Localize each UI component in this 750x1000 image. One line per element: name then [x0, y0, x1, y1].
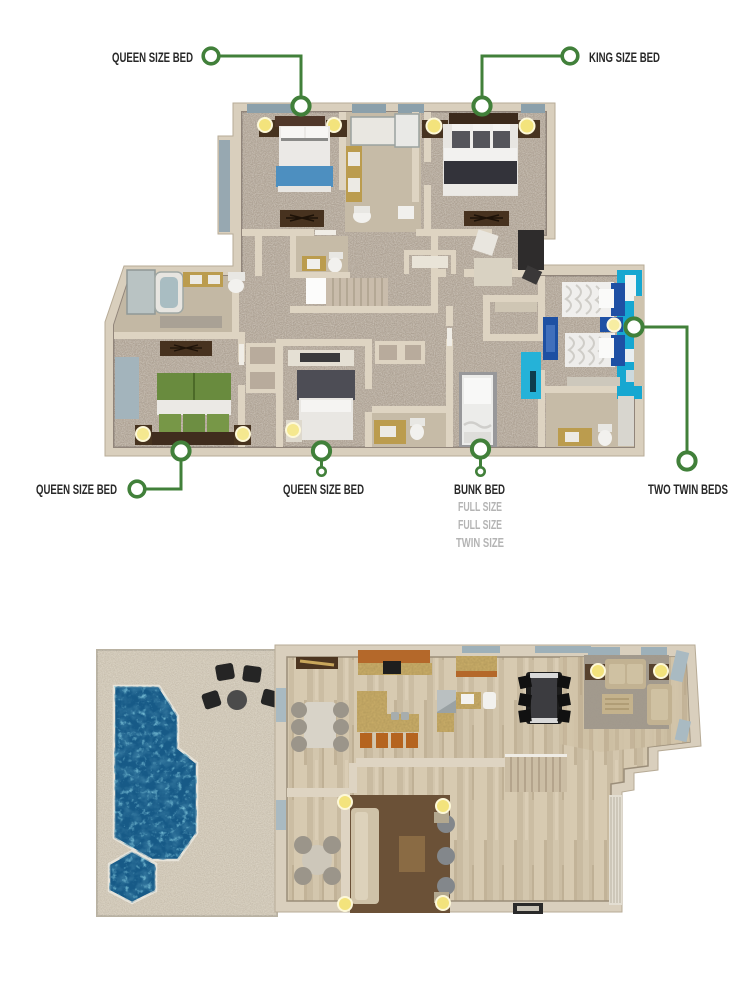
- svg-text:FULL SIZE: FULL SIZE: [458, 500, 502, 514]
- svg-text:FULL SIZE: FULL SIZE: [458, 518, 502, 532]
- svg-text:KING SIZE BED: KING SIZE BED: [589, 49, 660, 65]
- svg-text:QUEEN SIZE BED: QUEEN SIZE BED: [36, 481, 117, 497]
- svg-text:QUEEN SIZE BED: QUEEN SIZE BED: [283, 481, 364, 497]
- svg-text:TWIN SIZE: TWIN SIZE: [456, 536, 504, 550]
- svg-text:BUNK BED: BUNK BED: [454, 481, 505, 497]
- svg-text:QUEEN SIZE BED: QUEEN SIZE BED: [112, 49, 193, 65]
- svg-text:TWO TWIN BEDS: TWO TWIN BEDS: [648, 481, 728, 497]
